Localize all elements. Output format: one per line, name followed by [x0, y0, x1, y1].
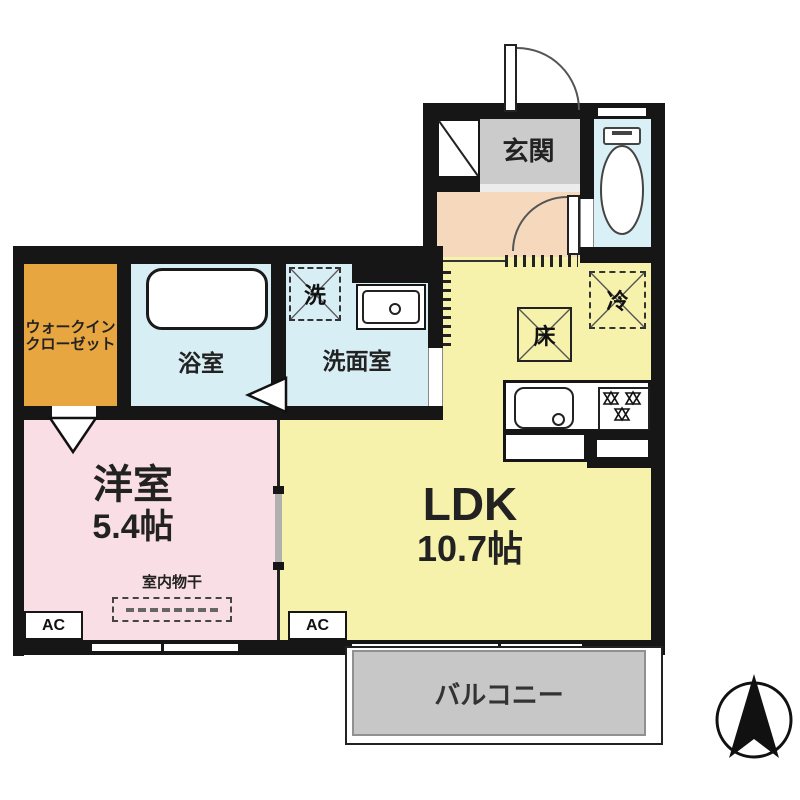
bedroom-size-label: 5.4帖 [33, 508, 233, 547]
washbasin-drain [389, 303, 401, 315]
vanity-counter [352, 264, 428, 283]
bedroom-label: 洋室 [33, 462, 233, 508]
washer-label: 洗 [304, 278, 326, 310]
ac-unit-bedroom: AC [24, 611, 83, 640]
diagonal-line-icon [439, 121, 478, 176]
kitchen-lower-counter [503, 432, 587, 462]
bedroom-sliding-door [275, 494, 282, 562]
door-frame-tick [273, 486, 284, 494]
ldk-size-label: 10.7帖 [370, 528, 570, 569]
washing-machine-symbol: 洗 [289, 267, 341, 321]
ac-unit-ldk: AC [288, 611, 347, 640]
floor-storage-symbol: 床 [517, 307, 572, 362]
drying-rack-symbol [112, 597, 232, 622]
floor-plan-canvas: 玄関 ウォークイン クローゼット 洗 床 冷 [0, 0, 800, 800]
kitchen-counter [503, 380, 651, 432]
shoe-storage [437, 119, 480, 178]
washroom-label: 洗面室 [286, 348, 428, 374]
bathroom-label: 浴室 [131, 350, 271, 376]
washroom-door [428, 348, 443, 406]
genkan-step-edge [477, 184, 580, 192]
wall-left [13, 246, 24, 656]
wic-label-line1: ウォークイン [25, 319, 115, 336]
entrance-door-arc-icon [515, 44, 585, 114]
window-center-tick [161, 640, 164, 655]
room-genkan: 玄関 [477, 119, 580, 184]
balcony: バルコニー [352, 650, 646, 736]
floor-storage-label: 床 [533, 319, 555, 351]
kitchen-stub-niche [597, 440, 648, 457]
genkan-label: 玄関 [502, 137, 554, 167]
wall-toilet-left [580, 119, 594, 199]
wall-bathroom-washroom [271, 264, 286, 384]
wall-shoebox-bottom [435, 178, 480, 192]
balcony-label: バルコニー [434, 675, 563, 712]
kitchen-sink-icon [514, 387, 574, 429]
hallway-ldk-boundary [443, 260, 505, 262]
bedroom-window [92, 641, 238, 654]
drying-pole-icon [126, 608, 218, 612]
toilet-icon [598, 126, 646, 238]
wall-main-top [13, 246, 443, 264]
indoor-drying-label: 室内物干 [92, 574, 252, 591]
soffit-hatch-horizontal [505, 255, 578, 267]
bathtub-icon [146, 268, 268, 330]
stove-icon [598, 387, 650, 431]
refrigerator-symbol: 冷 [589, 271, 646, 329]
compass-north-icon [712, 670, 796, 766]
wall-toilet-bottom [580, 247, 665, 263]
soffit-hatch-vertical [443, 268, 451, 346]
toilet-window [596, 106, 648, 118]
hallway-door-arc-icon [508, 195, 570, 255]
kitchen-sink-drain [552, 413, 565, 426]
door-frame-tick [273, 562, 284, 570]
wall-washroom-ldk [428, 246, 443, 348]
washbasin-icon [356, 284, 426, 330]
fridge-label: 冷 [606, 284, 628, 316]
burner-icons [600, 389, 644, 425]
wic-label-line2: クローゼット [25, 336, 115, 353]
wic-door-triangle-icon [46, 416, 100, 456]
bathroom-door-triangle-icon [230, 374, 290, 416]
ldk-label: LDK [370, 478, 570, 531]
wall-right [651, 103, 665, 649]
toilet-door [580, 199, 594, 249]
room-walk-in-closet: ウォークイン クローゼット [24, 264, 117, 408]
wall-wic-bathroom [117, 264, 131, 408]
